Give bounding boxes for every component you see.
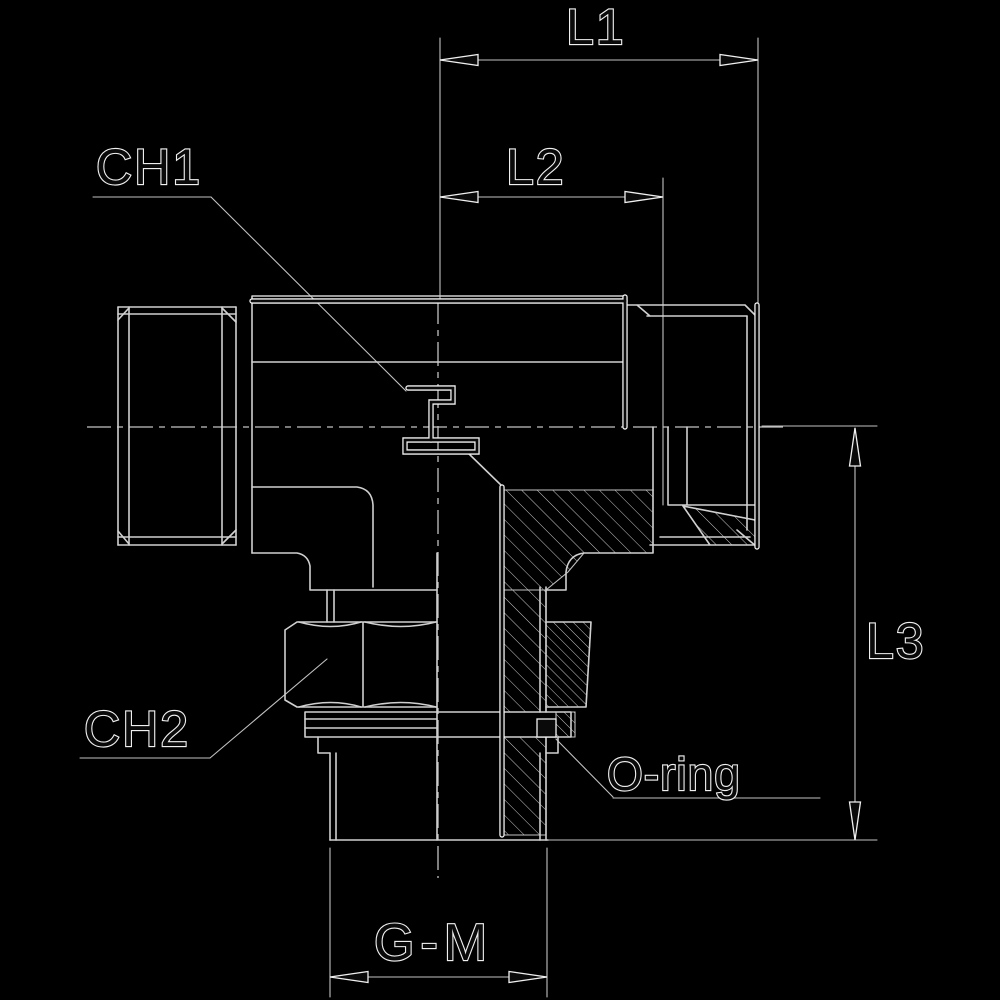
hatch-washer bbox=[556, 712, 575, 737]
arrow-l1-left bbox=[440, 55, 478, 66]
callout-label-oring: O-ring bbox=[607, 748, 741, 800]
hatch-locknut bbox=[546, 622, 591, 707]
arrow-gm-left bbox=[330, 972, 368, 983]
tee-fitting-drawing: L1 L2 L3 CH1 CH2 O-ring G-M bbox=[0, 0, 1000, 1000]
leader-ch2 bbox=[210, 659, 327, 758]
arrow-l2-left bbox=[440, 192, 478, 203]
leader-oring bbox=[556, 739, 613, 797]
arrow-l1-right bbox=[720, 55, 758, 66]
o-ring-section bbox=[537, 719, 556, 737]
left-nut bbox=[118, 307, 236, 545]
body-run bbox=[252, 296, 653, 840]
arrow-l3-top bbox=[850, 428, 861, 466]
center-bore-step-upper bbox=[408, 388, 453, 440]
arrow-gm-right bbox=[509, 972, 547, 983]
bore-cone-edge bbox=[467, 452, 503, 487]
callout-label-ch1: CH1 bbox=[96, 139, 202, 195]
dim-label-l3: L3 bbox=[866, 613, 926, 669]
hatch-body-center bbox=[502, 490, 653, 590]
dim-label-l2: L2 bbox=[506, 139, 566, 195]
technical-drawing-canvas: L1 L2 L3 CH1 CH2 O-ring G-M bbox=[0, 0, 1000, 1000]
arrow-l2-right bbox=[625, 192, 663, 203]
dim-label-gm: G-M bbox=[374, 914, 493, 972]
callout-label-ch2: CH2 bbox=[84, 701, 190, 757]
dim-label-l1: L1 bbox=[566, 0, 626, 55]
arrow-l3-bottom bbox=[850, 802, 861, 840]
hatch-right-port-wall bbox=[683, 506, 755, 545]
